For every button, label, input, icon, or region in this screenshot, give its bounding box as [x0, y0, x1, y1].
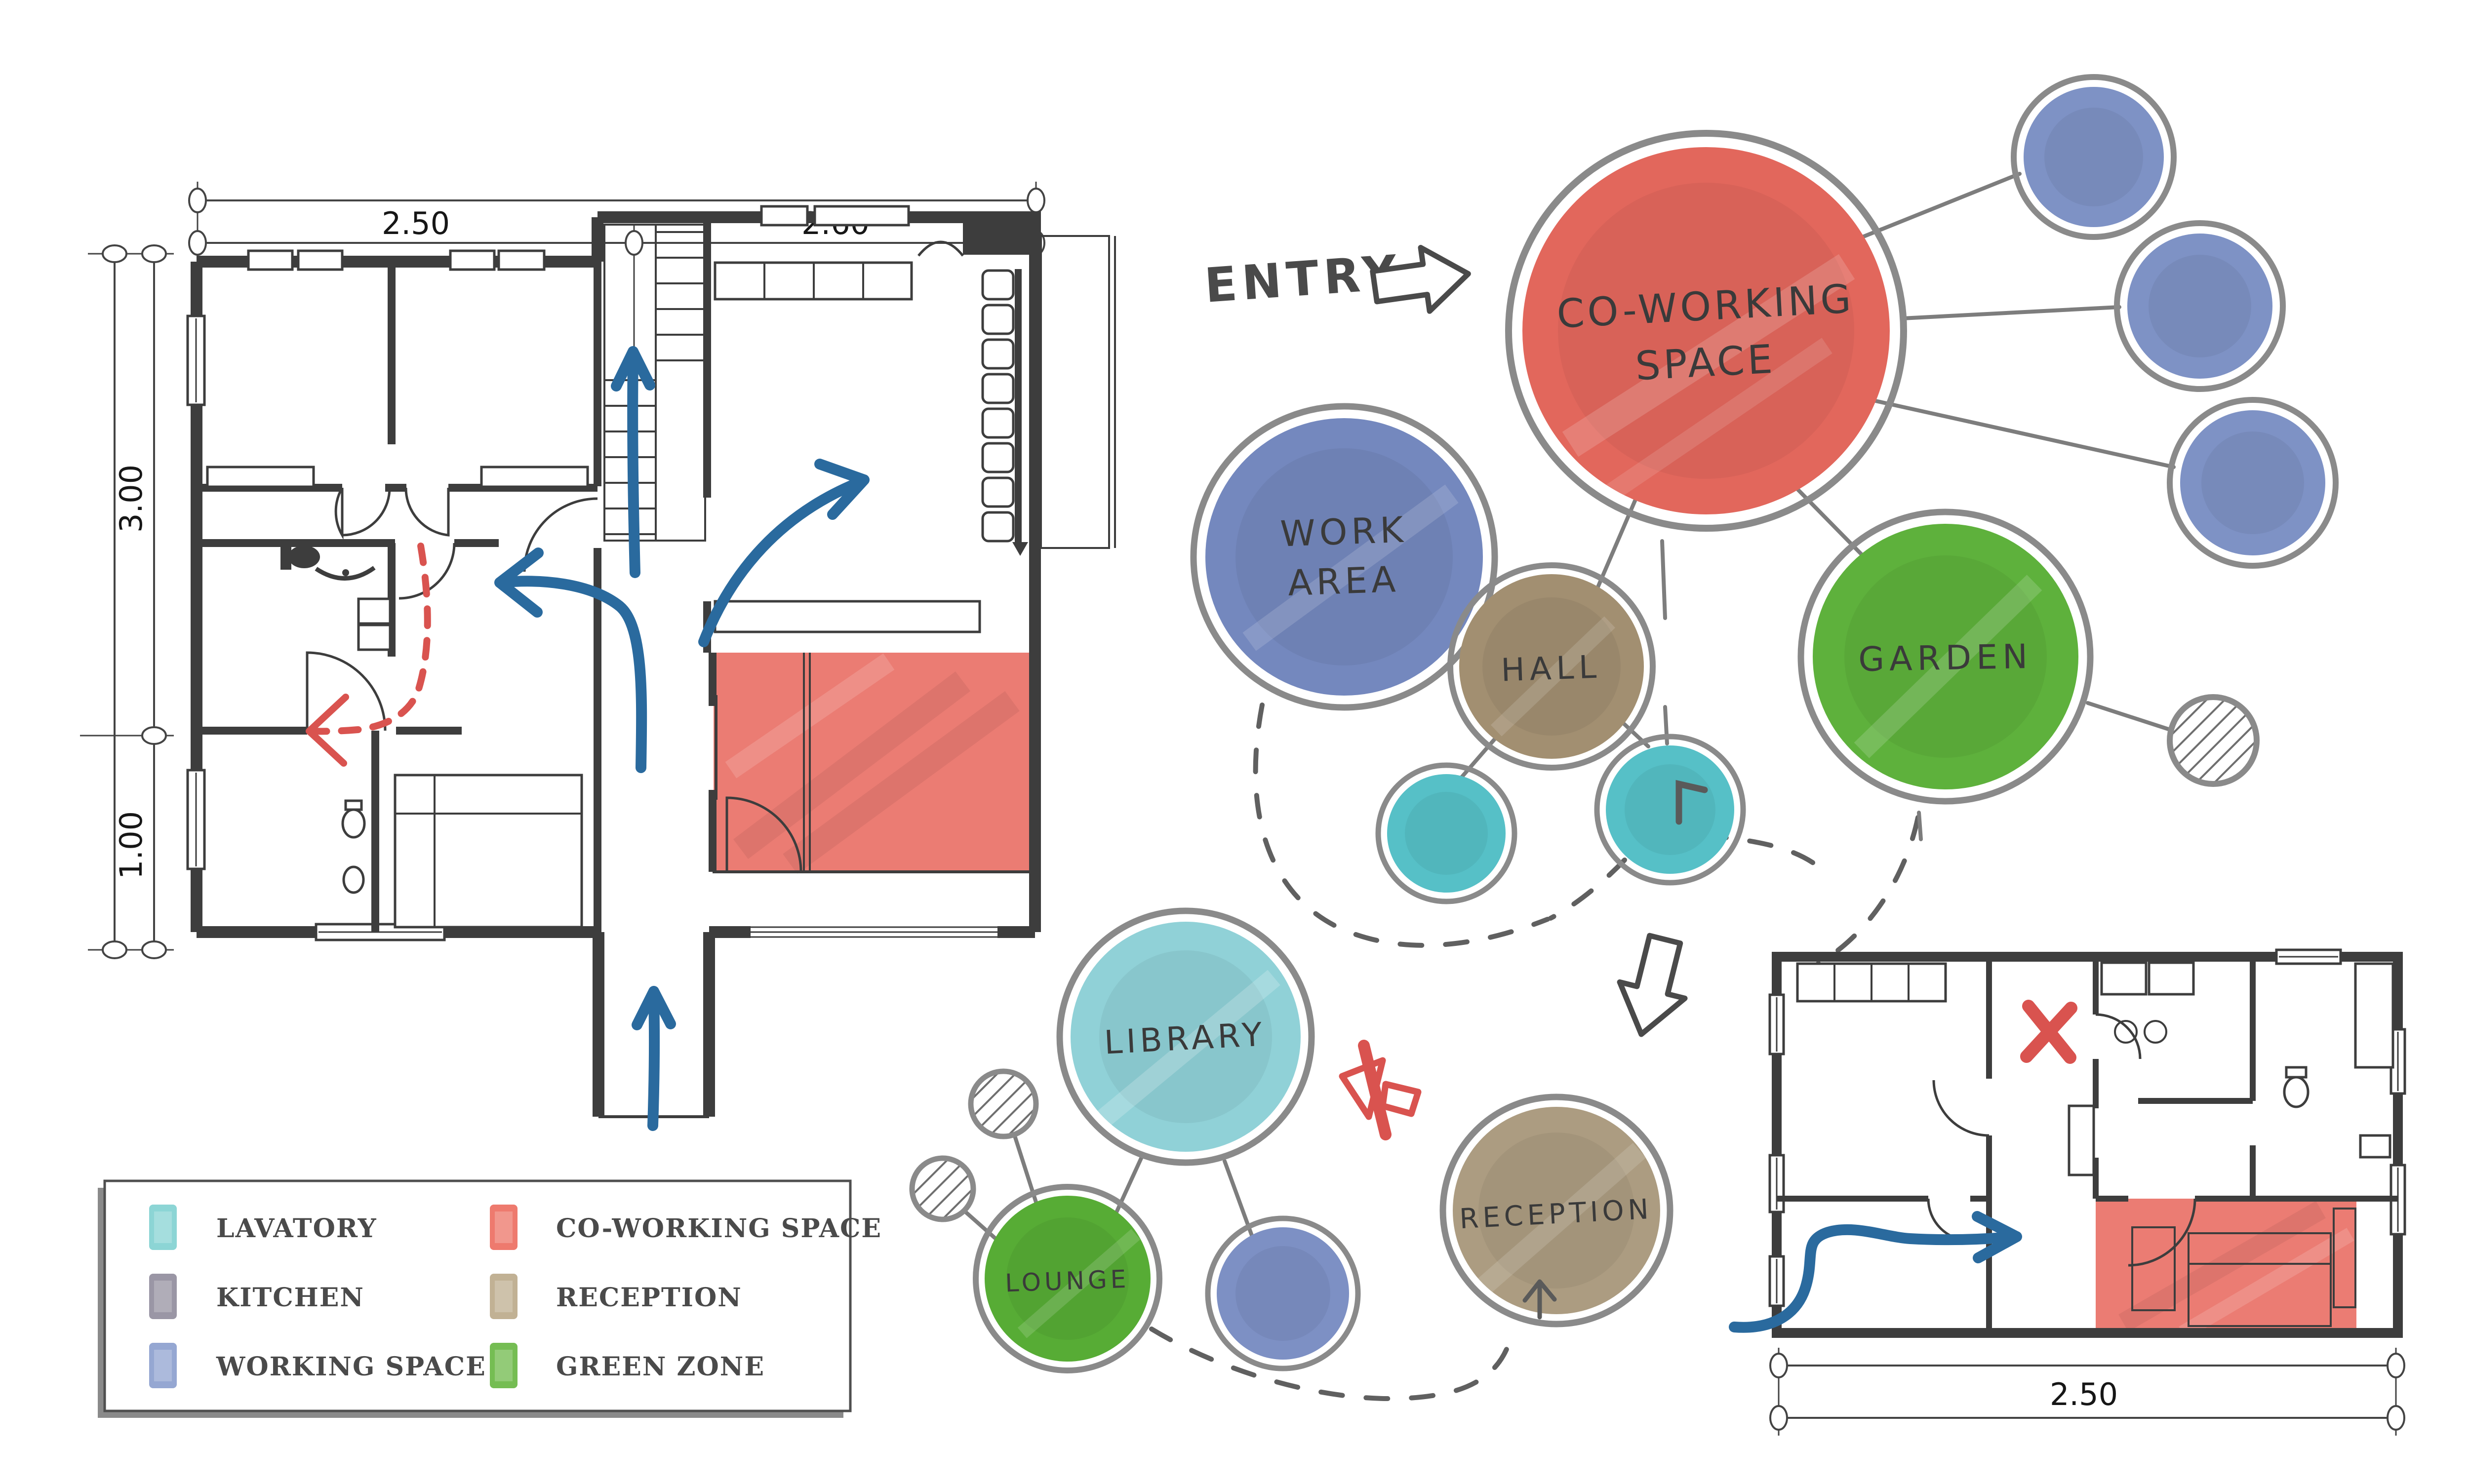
- bubble-satellite-2: [2117, 223, 2283, 389]
- highlight-coworking-room: [714, 653, 1035, 872]
- garden-label: GARDEN: [1858, 637, 2033, 679]
- hatched-circle-garden: [2170, 697, 2257, 784]
- hatched-circle-lounge-1: [971, 1071, 1036, 1136]
- legend-label-green-zone: GREEN ZONE: [556, 1352, 765, 1382]
- bubble-satellite-1: [2014, 77, 2174, 237]
- bubble-lounge: LOUNGE: [976, 1187, 1159, 1370]
- diagram-canvas: 2.50 2.60 3.00 1.00: [0, 0, 2469, 1482]
- dim-left-upper: 3.00: [113, 465, 149, 533]
- dim-top-left: 2.50: [382, 205, 450, 241]
- work-area-label-line1: WORK: [1279, 509, 1408, 555]
- legend-label-working-space: WORKING SPACE: [216, 1352, 486, 1382]
- legend: LAVATORY KITCHEN WORKING SPACE CO-WORKIN…: [98, 1181, 882, 1418]
- bubble-hall: HALL: [1450, 565, 1653, 768]
- entry-up-arrow: [653, 998, 654, 1126]
- legend-label-kitchen: KITCHEN: [216, 1283, 364, 1313]
- legend-label-reception: RECEPTION: [556, 1283, 742, 1313]
- bubble-coworking: CO-WORKING SPACE: [1509, 133, 1904, 528]
- bubble-small-blue: [1208, 1218, 1358, 1368]
- coworking-label-line2: SPACE: [1634, 336, 1777, 390]
- legend-label-coworking-space: CO-WORKING SPACE: [556, 1213, 882, 1244]
- hall-label: HALL: [1500, 649, 1602, 689]
- work-area-label-line2: AREA: [1287, 558, 1400, 604]
- dim-left-lower: 1.00: [113, 811, 149, 879]
- legend-label-lavatory: LAVATORY: [216, 1213, 377, 1244]
- concept-diagram-page: 2.50 2.60 3.00 1.00: [0, 0, 2469, 1482]
- bubble-lavatory-1: [1378, 765, 1514, 901]
- up-arrow-stairs: [633, 358, 635, 573]
- bubble-satellite-3: [2170, 400, 2336, 566]
- bubble-reception: RECEPTION: [1443, 1097, 1670, 1324]
- lounge-label: LOUNGE: [1005, 1265, 1130, 1298]
- dim-small-bottom: 2.50: [2050, 1376, 2118, 1412]
- bubble-garden: GARDEN: [1801, 512, 2090, 801]
- hatched-circle-lounge-2: [912, 1158, 973, 1219]
- bubble-library: LIBRARY: [1060, 911, 1312, 1163]
- bubble-lavatory-2: [1597, 737, 1743, 883]
